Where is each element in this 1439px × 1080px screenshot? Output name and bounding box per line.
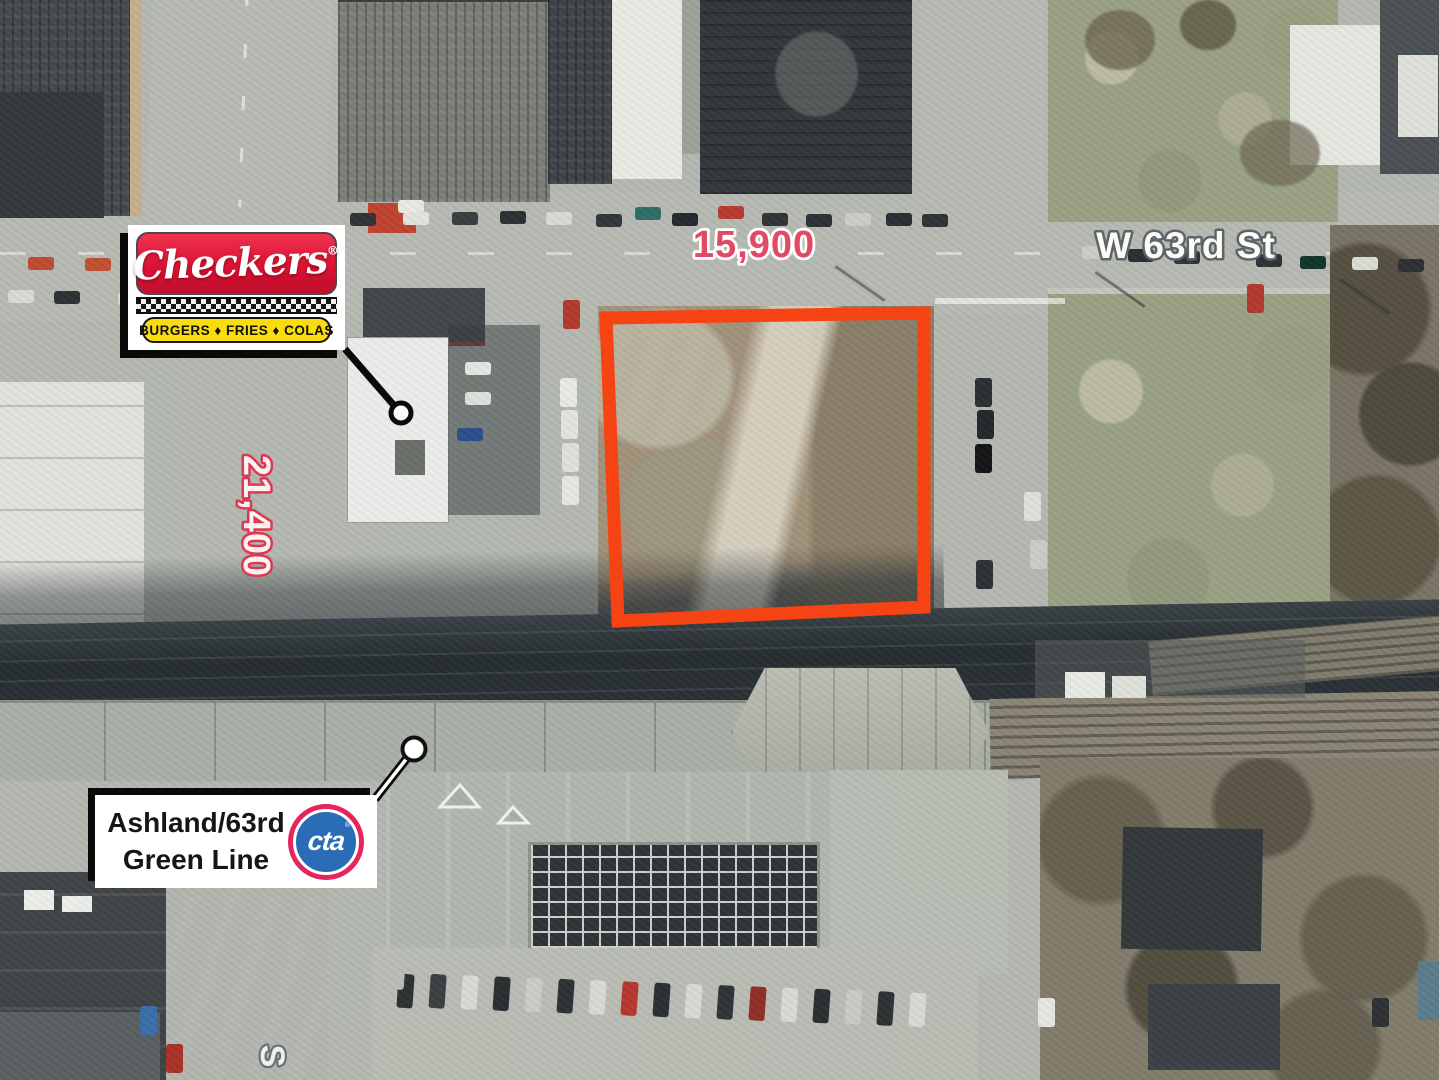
cta-leader-line-core xyxy=(375,753,411,799)
cta-station-name: Ashland/63rd Green Line xyxy=(107,805,285,878)
checkers-leader-line xyxy=(345,349,398,410)
checkers-tagline-text: BURGERS ♦ FRIES ♦ COLAS xyxy=(139,323,334,338)
cta-logo: cta ® xyxy=(293,809,359,875)
cta-registered-mark: ® xyxy=(345,822,350,829)
checkers-leader-dot xyxy=(391,403,411,423)
cta-leader-dot xyxy=(403,738,426,761)
traffic-count-ashland: 21,400 xyxy=(235,455,277,577)
parcel-outline xyxy=(606,313,924,621)
station-name-line2: Green Line xyxy=(107,842,285,878)
aerial-map: 15,900 W 63rd St 21,400 S Checkers® BURG… xyxy=(0,0,1439,1080)
cta-logo-text: cta xyxy=(306,826,345,857)
checkers-brand: Checkers xyxy=(133,237,329,290)
station-name-line1: Ashland/63rd xyxy=(107,805,285,841)
plaza-triangle xyxy=(499,807,528,823)
cta-station-callout: Ashland/63rd Green Line cta ® xyxy=(95,795,377,888)
street-label-partial-s: S xyxy=(253,1045,291,1068)
checkers-brand-text: Checkers® xyxy=(133,240,341,286)
checkers-logo: Checkers® xyxy=(136,232,337,295)
plaza-triangle xyxy=(440,785,479,807)
street-label-63rd: W 63rd St xyxy=(1096,225,1276,266)
checkerboard-band xyxy=(136,297,337,314)
traffic-count-63rd: 15,900 xyxy=(693,224,815,266)
checkers-tagline: BURGERS ♦ FRIES ♦ COLAS xyxy=(142,317,331,343)
checkers-callout: Checkers® BURGERS ♦ FRIES ♦ COLAS xyxy=(128,225,345,350)
registered-mark: ® xyxy=(327,243,339,257)
annotation-overlay: 15,900 W 63rd St 21,400 S xyxy=(0,0,1439,1080)
